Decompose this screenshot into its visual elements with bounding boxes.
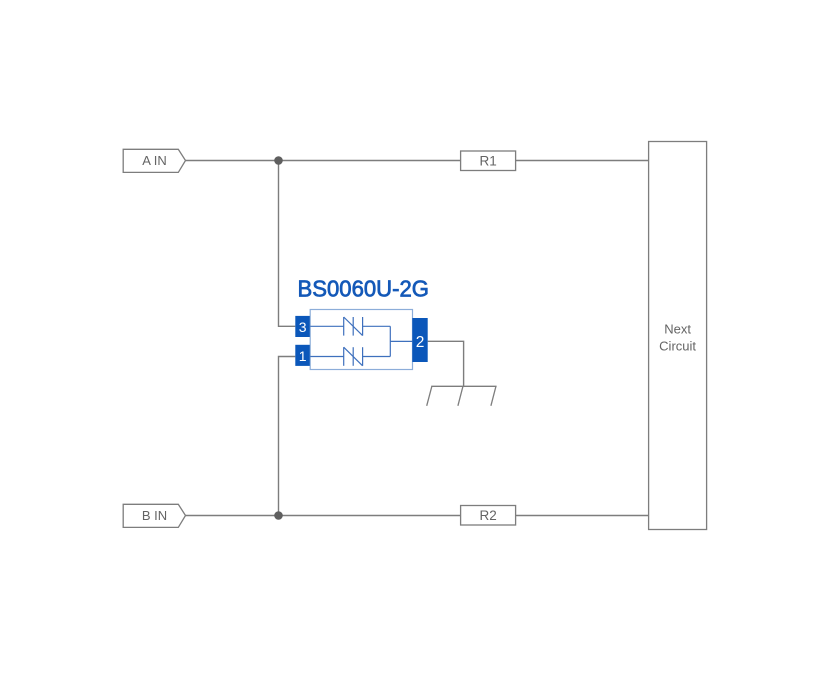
svg-text:A IN: A IN	[142, 153, 167, 168]
svg-text:Circuit: Circuit	[659, 339, 696, 354]
svg-text:B IN: B IN	[142, 508, 167, 523]
svg-text:R1: R1	[479, 153, 496, 168]
svg-text:R2: R2	[479, 508, 496, 523]
svg-text:Next: Next	[664, 322, 691, 337]
svg-text:1: 1	[299, 348, 307, 364]
svg-text:3: 3	[299, 319, 307, 335]
svg-text:BS0060U-2G: BS0060U-2G	[298, 276, 430, 302]
svg-text:2: 2	[416, 334, 425, 351]
